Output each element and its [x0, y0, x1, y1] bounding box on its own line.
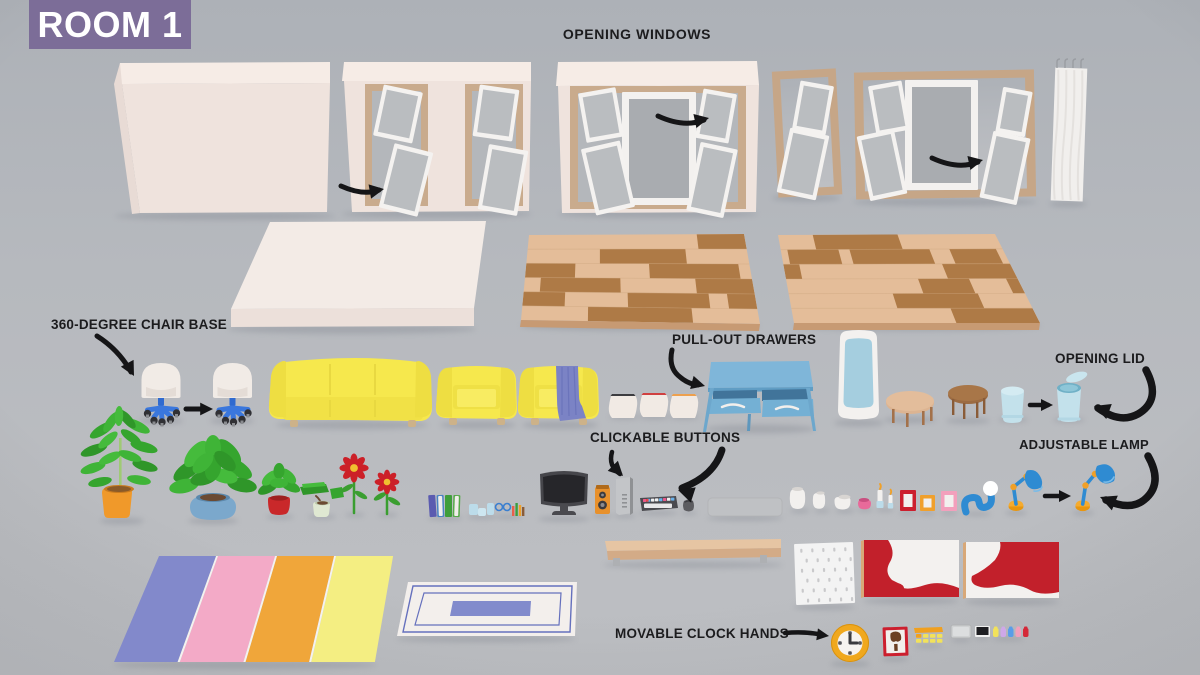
svg-text:OPENING LID: OPENING LID — [1055, 351, 1145, 366]
svg-text:ADJUSTABLE LAMP: ADJUSTABLE LAMP — [1019, 437, 1149, 452]
svg-text:360-DEGREE CHAIR BASE: 360-DEGREE CHAIR BASE — [51, 317, 227, 332]
svg-text:ROOM 1: ROOM 1 — [37, 4, 182, 45]
svg-text:PULL-OUT DRAWERS: PULL-OUT DRAWERS — [672, 332, 816, 347]
svg-text:CLICKABLE BUTTONS: CLICKABLE BUTTONS — [590, 430, 740, 445]
svg-text:OPENING WINDOWS: OPENING WINDOWS — [563, 26, 711, 42]
svg-text:MOVABLE CLOCK HANDS: MOVABLE CLOCK HANDS — [615, 626, 789, 641]
